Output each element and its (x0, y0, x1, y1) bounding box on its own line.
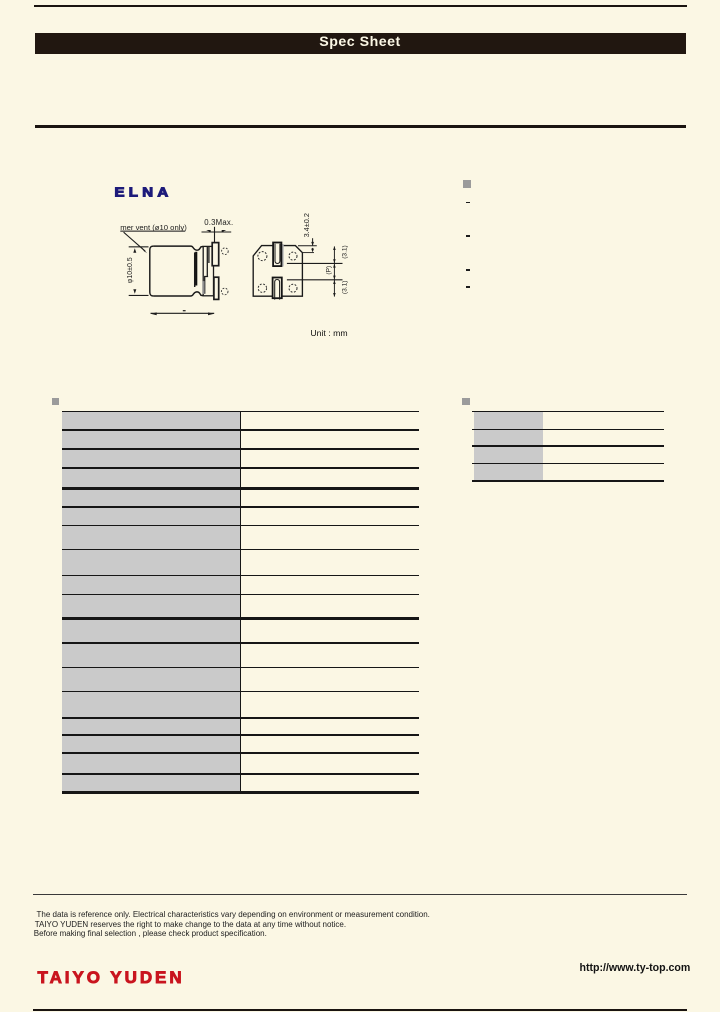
svg-text:mer vent (ø10 only): mer vent (ø10 only) (120, 223, 187, 232)
svg-text:(3.1): (3.1) (341, 281, 348, 295)
svg-text:(P): (P) (325, 266, 332, 275)
svg-text:3.4±0.2: 3.4±0.2 (302, 213, 311, 237)
svg-text:0.3Max.: 0.3Max. (204, 218, 233, 227)
svg-text:(3.1): (3.1) (341, 245, 348, 259)
svg-text:φ10±0.5: φ10±0.5 (127, 257, 134, 283)
